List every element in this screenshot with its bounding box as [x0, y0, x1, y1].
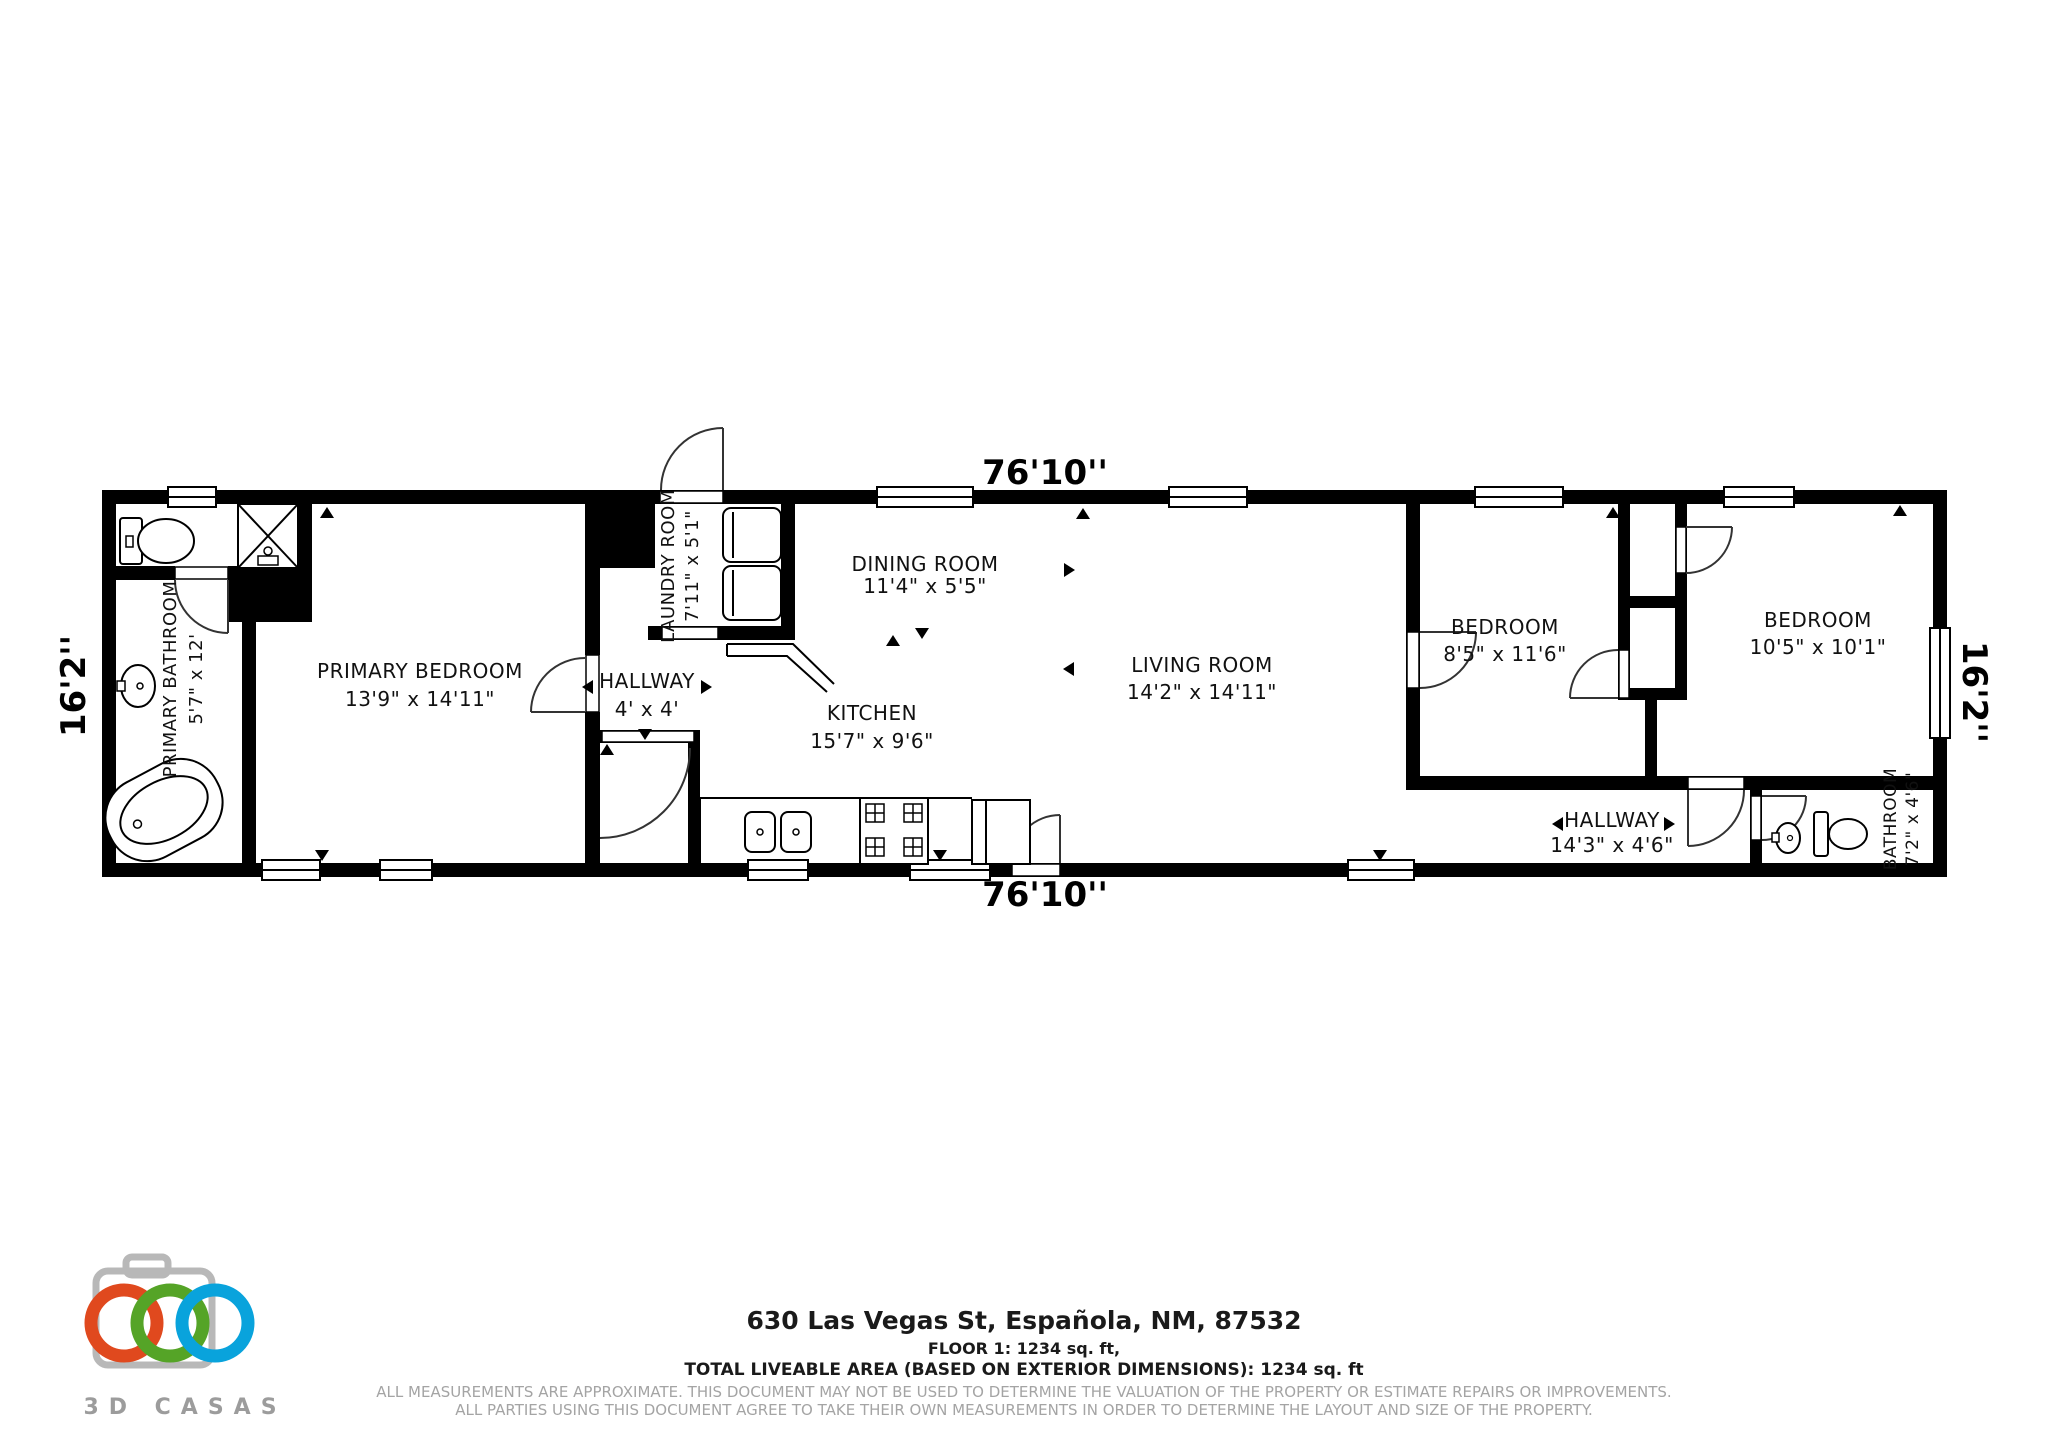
door-primary-bathroom	[175, 580, 228, 633]
floorplan-page: 76'10'' 76'10'' 16'2'' 16'2'' PRIMARY BA…	[0, 0, 2048, 1449]
room-label-primary-bedroom: PRIMARY BEDROOM 13'9" x 14'11"	[317, 659, 523, 711]
svg-text:13'9" x 14'11": 13'9" x 14'11"	[345, 687, 495, 711]
svg-text:DINING ROOM: DINING ROOM	[851, 552, 998, 576]
door-entry-laundry	[661, 428, 723, 490]
svg-text:5'7" x 12': 5'7" x 12'	[186, 633, 207, 724]
svg-text:PRIMARY BATHROOM: PRIMARY BATHROOM	[160, 581, 181, 778]
svg-text:11'4" x 5'5": 11'4" x 5'5"	[863, 574, 987, 598]
camera-lens-icon	[126, 1257, 168, 1275]
window	[1169, 487, 1247, 507]
room-label-kitchen: KITCHEN 15'7" x 9'6"	[810, 701, 934, 753]
door-openings	[175, 491, 1761, 876]
direction-markers	[315, 505, 1907, 861]
window	[1348, 860, 1414, 880]
kitchen-peninsula	[727, 644, 834, 692]
dimension-left: 16'2''	[54, 635, 94, 737]
svg-text:14'3" x 4'6": 14'3" x 4'6"	[1550, 833, 1674, 857]
svg-text:KITCHEN: KITCHEN	[827, 701, 917, 725]
dimension-top: 76'10''	[982, 453, 1108, 493]
door-closet-top	[1686, 527, 1732, 573]
stove-icon	[860, 798, 928, 864]
svg-text:BATHROOM: BATHROOM	[1881, 768, 1901, 870]
room-label-laundry: LAUNDRY ROOM 7'11" x 5'1"	[658, 489, 703, 643]
address-line: 630 Las Vegas St, Española, NM, 87532	[0, 1306, 2048, 1335]
shower-icon	[238, 504, 298, 568]
toilet-icon	[120, 518, 194, 564]
svg-text:LAUNDRY ROOM: LAUNDRY ROOM	[658, 489, 679, 643]
dimension-bottom: 76'10''	[982, 875, 1108, 915]
svg-text:BEDROOM: BEDROOM	[1451, 615, 1559, 639]
svg-text:HALLWAY: HALLWAY	[599, 669, 695, 693]
door-hall-closet	[600, 748, 690, 838]
window	[262, 860, 320, 880]
svg-text:BEDROOM: BEDROOM	[1764, 608, 1872, 632]
room-label-bedroom2: BEDROOM 10'5" x 10'1"	[1750, 608, 1887, 659]
disclaimer-line2: ALL PARTIES USING THIS DOCUMENT AGREE TO…	[0, 1401, 2048, 1419]
window	[1475, 487, 1563, 507]
toilet2-icon	[1814, 812, 1867, 856]
svg-text:4' x 4': 4' x 4'	[615, 697, 680, 721]
total-area-line: TOTAL LIVEABLE AREA (BASED ON EXTERIOR D…	[0, 1360, 2048, 1380]
svg-text:15'7" x 9'6": 15'7" x 9'6"	[810, 729, 934, 753]
svg-text:7'11" x 5'1": 7'11" x 5'1"	[682, 510, 703, 622]
window	[1930, 628, 1950, 738]
room-label-living: LIVING ROOM 14'2" x 14'11"	[1127, 653, 1277, 704]
svg-text:7'2" x 4'6": 7'2" x 4'6"	[1903, 772, 1923, 867]
window	[877, 487, 973, 507]
kitchen-sink-icon	[745, 812, 811, 852]
door-closet-bottom	[1570, 650, 1618, 698]
washer-icon	[723, 508, 781, 562]
room-label-hallway1: HALLWAY 4' x 4'	[599, 669, 695, 721]
refrigerator-icon	[972, 800, 1030, 864]
window	[380, 860, 432, 880]
window	[168, 487, 216, 507]
disclaimer-line1: ALL MEASUREMENTS ARE APPROXIMATE. THIS D…	[0, 1383, 2048, 1401]
window	[1724, 487, 1794, 507]
svg-text:14'2" x 14'11": 14'2" x 14'11"	[1127, 680, 1277, 704]
svg-text:HALLWAY: HALLWAY	[1564, 808, 1660, 832]
kitchen-counter	[700, 798, 972, 863]
sink-icon	[117, 665, 155, 707]
svg-text:PRIMARY BEDROOM: PRIMARY BEDROOM	[317, 659, 523, 683]
dimension-right: 16'2''	[1954, 641, 1994, 743]
svg-text:10'5" x 10'1": 10'5" x 10'1"	[1750, 635, 1887, 659]
door-bedroom2	[1688, 790, 1744, 846]
room-label-hallway2: HALLWAY 14'3" x 4'6"	[1550, 808, 1674, 857]
sink2-icon	[1772, 823, 1800, 853]
dryer-icon	[723, 566, 781, 620]
svg-text:8'5" x 11'6": 8'5" x 11'6"	[1443, 642, 1567, 666]
room-label-bedroom1: BEDROOM 8'5" x 11'6"	[1443, 615, 1567, 666]
window	[748, 860, 808, 880]
svg-text:LIVING ROOM: LIVING ROOM	[1131, 653, 1273, 677]
floor-area-line: FLOOR 1: 1234 sq. ft,	[0, 1339, 2048, 1358]
door-primary-bedroom	[531, 658, 585, 712]
room-label-dining: DINING ROOM 11'4" x 5'5"	[851, 552, 998, 598]
floorplan-drawing: 76'10'' 76'10'' 16'2'' 16'2'' PRIMARY BA…	[0, 0, 2048, 1449]
